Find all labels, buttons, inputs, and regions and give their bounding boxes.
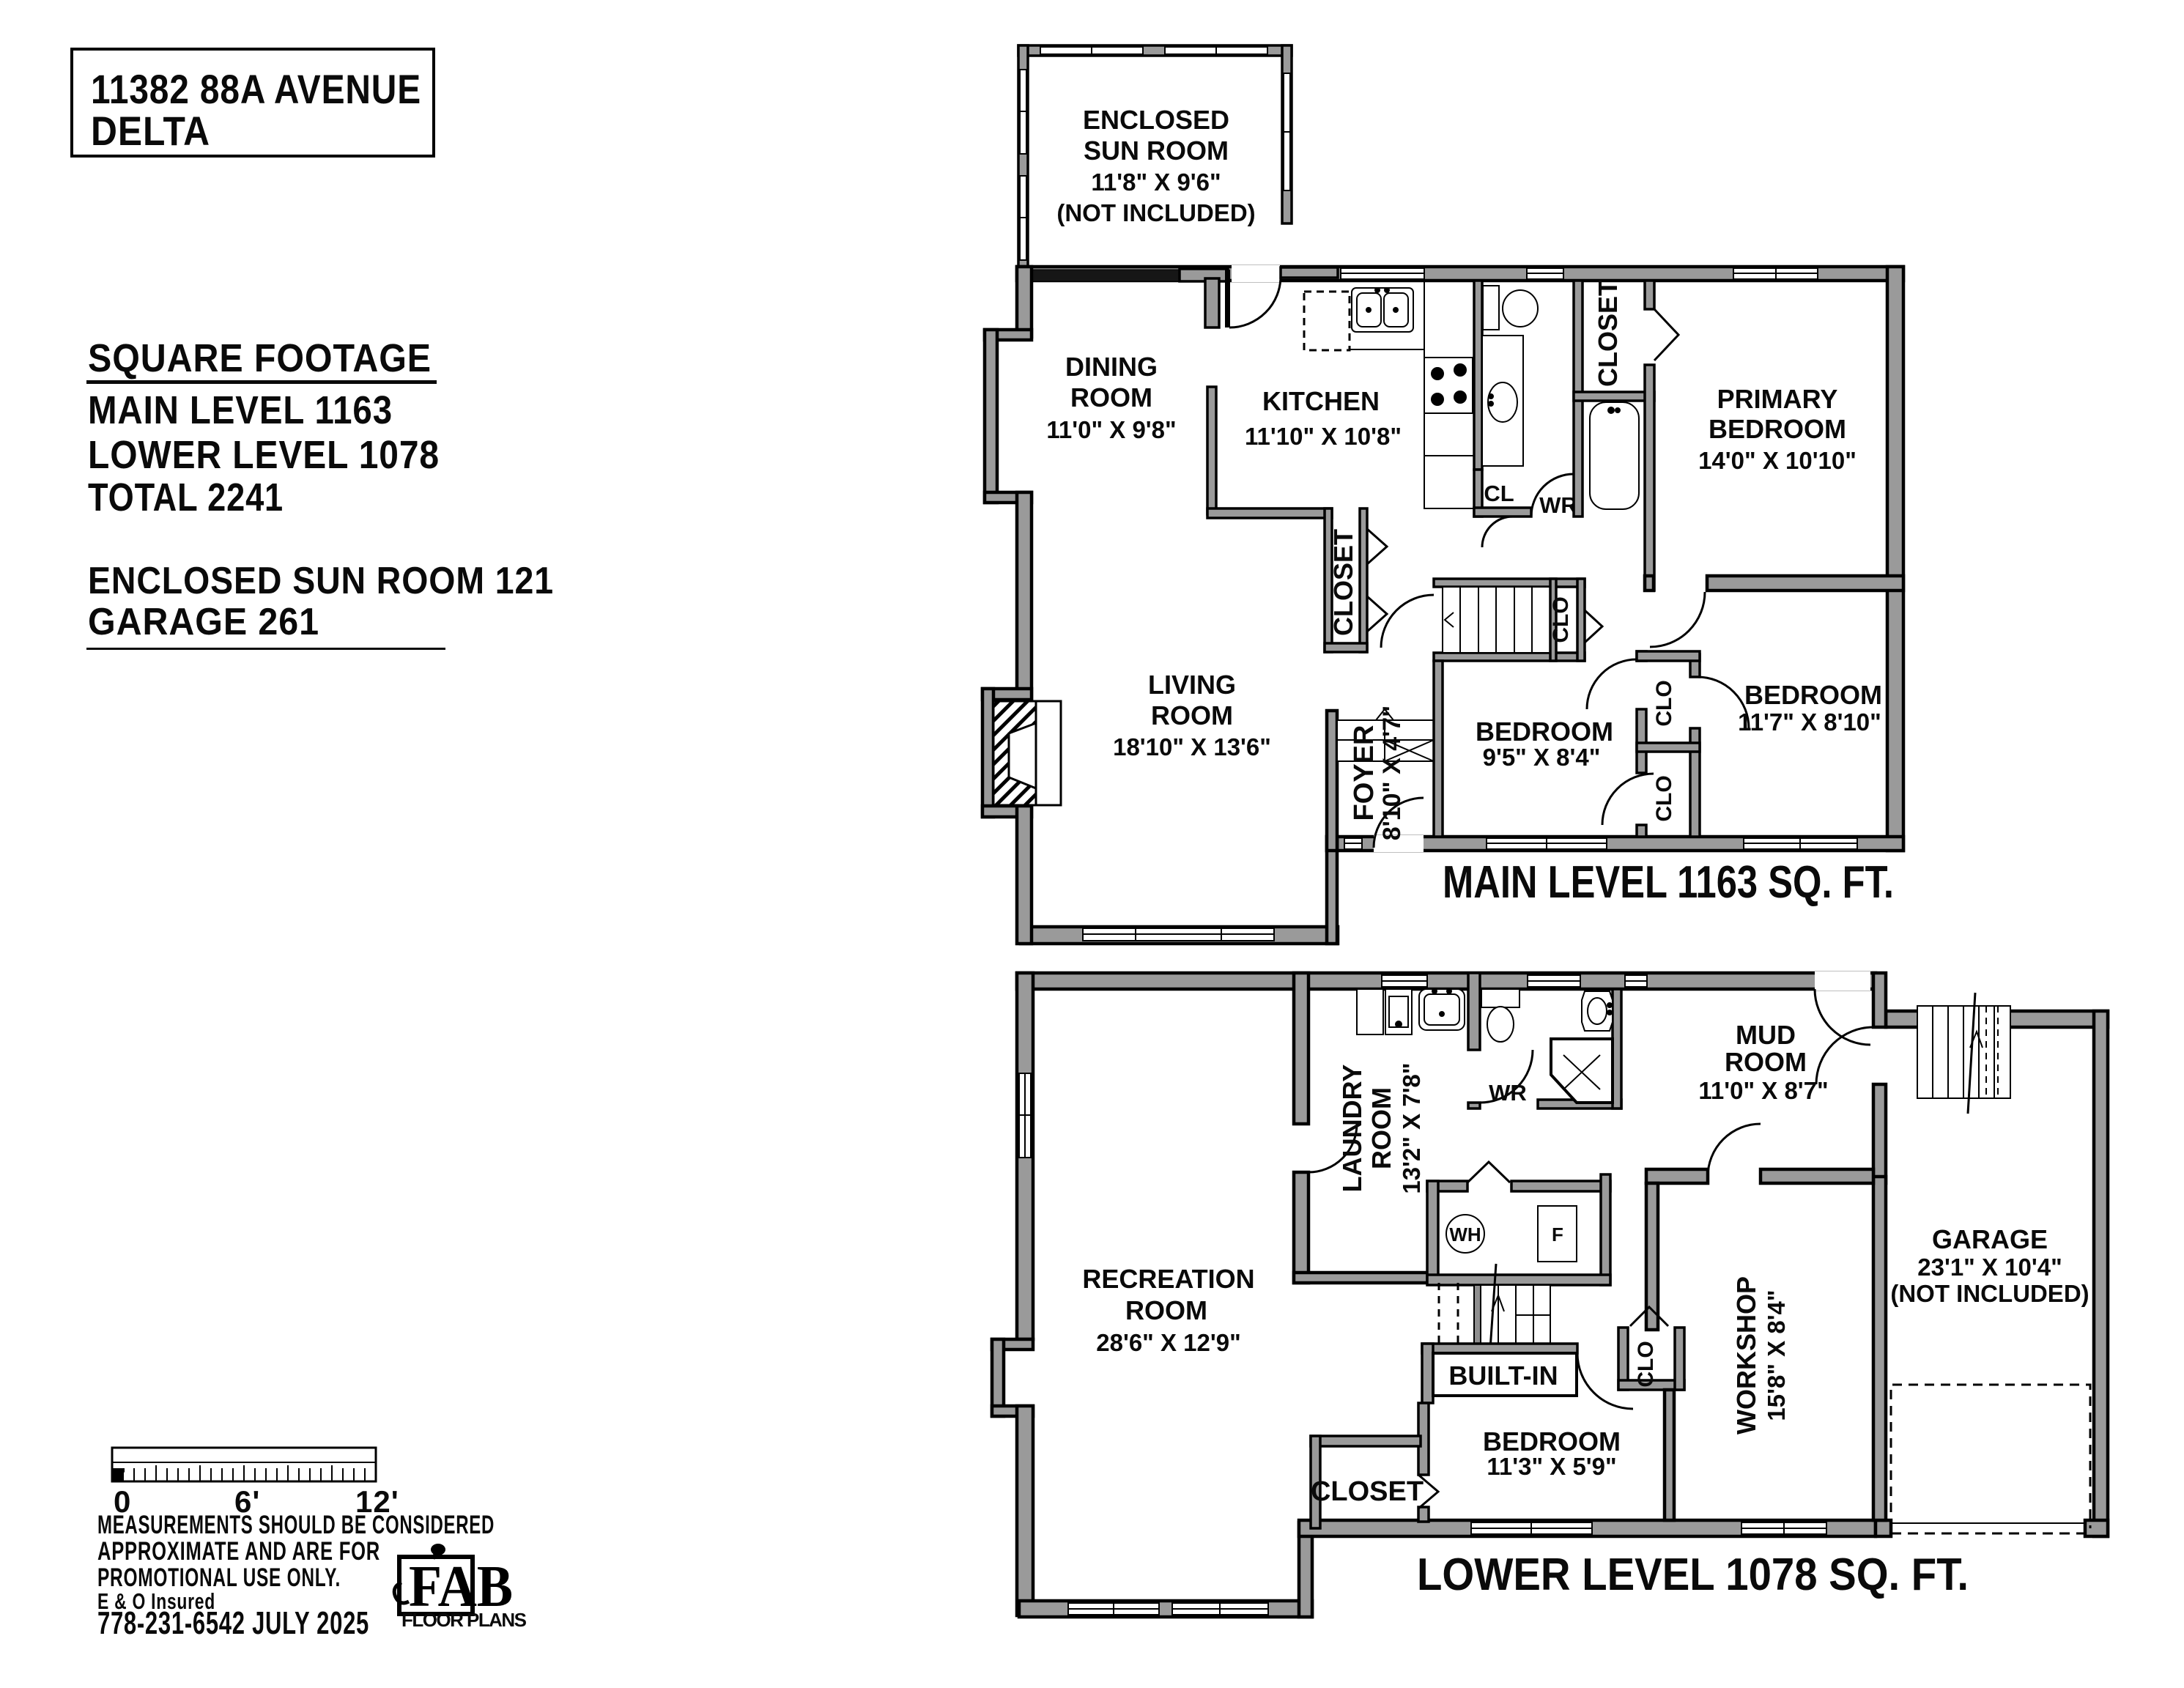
svg-text:15'8" X 8'4": 15'8" X 8'4" <box>1763 1289 1790 1421</box>
svg-text:WR: WR <box>1539 492 1577 518</box>
svg-text:11'10" X 10'8": 11'10" X 10'8" <box>1245 423 1402 450</box>
svg-text:ROOM: ROOM <box>1725 1047 1807 1077</box>
svg-text:23'1" X 10'4": 23'1" X 10'4" <box>1917 1254 2062 1281</box>
svg-text:GARAGE: GARAGE <box>1932 1224 2048 1254</box>
svg-text:WR: WR <box>1489 1080 1527 1106</box>
svg-text:PRIMARY: PRIMARY <box>1717 384 1838 414</box>
svg-text:ROOM: ROOM <box>1070 382 1152 412</box>
svg-text:CLO: CLO <box>1634 1341 1658 1387</box>
svg-text:MEASUREMENTS SHOULD BE CONSIDE: MEASUREMENTS SHOULD BE CONSIDERED <box>97 1511 495 1539</box>
svg-text:14'0" X 10'10": 14'0" X 10'10" <box>1698 447 1857 474</box>
svg-text:GARAGE 261: GARAGE 261 <box>88 601 319 643</box>
svg-text:CLOSET: CLOSET <box>1593 280 1623 387</box>
svg-text:CLO: CLO <box>1549 596 1573 643</box>
svg-text:CLOSET: CLOSET <box>1328 529 1358 636</box>
svg-text:28'6" X 12'9": 28'6" X 12'9" <box>1096 1329 1240 1356</box>
svg-text:TOTAL 2241: TOTAL 2241 <box>88 475 284 519</box>
svg-text:FOYER: FOYER <box>1349 725 1380 821</box>
svg-text:ROOM: ROOM <box>1366 1087 1396 1169</box>
svg-text:KITCHEN: KITCHEN <box>1262 386 1380 416</box>
svg-text:ENCLOSED: ENCLOSED <box>1083 105 1229 135</box>
svg-text:BEDROOM: BEDROOM <box>1744 680 1882 710</box>
svg-text:APPROXIMATE AND ARE FOR: APPROXIMATE AND ARE FOR <box>97 1537 380 1566</box>
svg-text:CL: CL <box>1484 481 1514 506</box>
svg-text:ROOM: ROOM <box>1151 700 1233 730</box>
svg-text:ROOM: ROOM <box>1125 1295 1207 1325</box>
svg-text:FLOOR PLANS: FLOOR PLANS <box>401 1609 528 1631</box>
svg-text:BEDROOM: BEDROOM <box>1709 414 1846 444</box>
svg-text:MAIN LEVEL 1163: MAIN LEVEL 1163 <box>88 388 393 432</box>
svg-text:DINING: DINING <box>1065 352 1158 382</box>
svg-text:LOWER LEVEL 1078: LOWER LEVEL 1078 <box>88 433 440 477</box>
svg-text:BEDROOM: BEDROOM <box>1483 1426 1621 1456</box>
svg-text:8'10" X 4'7": 8'10" X 4'7" <box>1378 706 1406 841</box>
svg-text:18'10" X 13'6": 18'10" X 13'6" <box>1113 733 1271 760</box>
svg-text:11'8" X 9'6": 11'8" X 9'6" <box>1091 169 1221 196</box>
svg-text:11'0" X 9'8": 11'0" X 9'8" <box>1046 416 1176 443</box>
svg-text:WH: WH <box>1449 1224 1481 1245</box>
svg-text:CLO: CLO <box>1652 680 1676 726</box>
svg-text:11'3" X 5'9": 11'3" X 5'9" <box>1487 1453 1616 1480</box>
svg-text:DELTA: DELTA <box>91 108 210 154</box>
svg-text:13'2" X 7'8": 13'2" X 7'8" <box>1398 1062 1425 1193</box>
svg-text:CLOSET: CLOSET <box>1311 1476 1424 1507</box>
svg-text:CLO: CLO <box>1652 775 1676 821</box>
svg-text:(NOT INCLUDED): (NOT INCLUDED) <box>1890 1280 2089 1307</box>
svg-text:SQUARE FOOTAGE: SQUARE FOOTAGE <box>88 336 432 380</box>
svg-text:MAIN LEVEL 1163 SQ. FT.: MAIN LEVEL 1163 SQ. FT. <box>1443 857 1894 908</box>
svg-text:LOWER LEVEL 1078 SQ. FT.: LOWER LEVEL 1078 SQ. FT. <box>1417 1550 1969 1600</box>
svg-text:11'7" X 8'10": 11'7" X 8'10" <box>1738 708 1881 736</box>
svg-text:ENCLOSED SUN ROOM 121: ENCLOSED SUN ROOM 121 <box>88 560 554 602</box>
svg-text:11'0" X 8'7": 11'0" X 8'7" <box>1698 1077 1828 1104</box>
svg-text:LIVING: LIVING <box>1148 670 1236 700</box>
svg-text:WORKSHOP: WORKSHOP <box>1731 1276 1761 1435</box>
svg-text:(NOT INCLUDED): (NOT INCLUDED) <box>1056 199 1255 226</box>
svg-text:SUN ROOM: SUN ROOM <box>1084 136 1229 166</box>
svg-text:778-231-6542 JULY 2025: 778-231-6542 JULY 2025 <box>97 1605 369 1641</box>
svg-text:BEDROOM: BEDROOM <box>1476 717 1613 747</box>
svg-text:9'5" X 8'4": 9'5" X 8'4" <box>1483 744 1601 771</box>
svg-text:MUD: MUD <box>1736 1020 1796 1050</box>
svg-text:F: F <box>1552 1224 1563 1245</box>
svg-text:BUILT-IN: BUILT-IN <box>1448 1361 1558 1391</box>
svg-text:11382 88A AVENUE: 11382 88A AVENUE <box>91 66 421 112</box>
svg-text:LAUNDRY: LAUNDRY <box>1337 1065 1367 1193</box>
svg-text:RECREATION: RECREATION <box>1082 1264 1254 1294</box>
